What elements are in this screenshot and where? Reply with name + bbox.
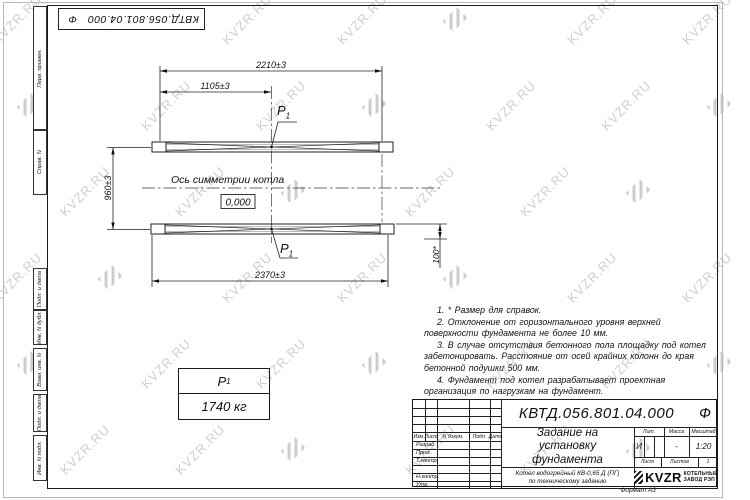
load-name-base: Р: [217, 374, 226, 389]
row-prov: Пров.: [414, 449, 439, 457]
title-line: фундамента: [532, 454, 603, 468]
title-line: установку: [539, 440, 596, 454]
drawing-sheet: KVZR.RUKVZR.RUKVZR.RUKVZR.RUKVZR.RUKVZR.…: [0, 0, 750, 500]
p1-base: P: [280, 241, 289, 256]
dim-1105: 1105±3: [200, 81, 229, 91]
mass-header: Масса: [664, 427, 689, 436]
note-1: 1. * Размер для справок.: [424, 305, 716, 317]
load-table-value: 1740 кг: [179, 394, 269, 418]
row-razrab: Разраб.: [414, 441, 439, 449]
axis-symmetry-label: Ось симметрии котла: [171, 174, 284, 186]
mass-value: -: [664, 436, 689, 457]
product-name: Котел водогрейный КВ-0,65 Д (ПГ) по техн…: [501, 467, 634, 488]
lit-value: И: [634, 436, 644, 457]
kvzr-logo-mark-icon: [634, 471, 643, 484]
col-list: Лист: [425, 432, 437, 441]
sheets-total: 1: [698, 457, 718, 467]
col-data: Дата: [490, 432, 501, 441]
note-4: 4. Фундамент под котел разрабатывает про…: [424, 375, 716, 398]
logo-sub-line: ЗАВОД РЭП: [684, 477, 718, 483]
doc-number-cell: КВТД.056.801.04.000 Ф: [501, 400, 718, 427]
drawing-title: Задание на установку фундамента: [501, 427, 634, 467]
dim-100: 100*: [431, 246, 441, 264]
row-nkontr: Н.контр.: [414, 473, 439, 481]
load-table: Р1 1740 кг: [178, 368, 270, 420]
format-label: Формат А3: [598, 487, 678, 494]
center-lines: [142, 86, 441, 243]
product-line: по техническому заданию: [529, 478, 607, 486]
scale-value: 1:20: [689, 436, 718, 457]
dim-2370: 2370±3: [254, 270, 285, 280]
title-line: Задание на: [537, 427, 598, 441]
kvzr-logo-subtitle: КОТЕЛЬНЫЙ ЗАВОД РЭП: [684, 471, 718, 483]
kvzr-logo: KVZR КОТЕЛЬНЫЙ ЗАВОД РЭП: [634, 467, 718, 487]
p1-sub: 1: [286, 112, 290, 121]
doc-number-suffix: Ф: [692, 405, 718, 422]
row-tkontr: Т.контр.: [414, 457, 439, 465]
level-mark: 0,000: [225, 198, 250, 209]
title-block: Изм. Лист N докум. Подп. Дата Разраб. Пр…: [412, 399, 717, 487]
doc-number: КВТД.056.801.04.000: [501, 405, 692, 422]
dim-960: 960±3: [103, 176, 113, 201]
p1-sub: 1: [289, 250, 293, 259]
scale-header: Масштаб: [689, 427, 718, 436]
p1-label-upper: P1: [277, 103, 290, 121]
note-2: 2. Отклонение от горизонтального уровня …: [424, 317, 716, 340]
load-table-name: Р1: [179, 369, 269, 394]
kvzr-logo-text: KVZR: [645, 470, 682, 485]
dim-2210: 2210±3: [255, 60, 286, 70]
lit-header: Лит.: [634, 427, 664, 436]
sheet-label: Лист: [634, 457, 661, 467]
col-ndoc: N докум.: [437, 432, 469, 441]
product-line: Котел водогрейный КВ-0,65 Д (ПГ): [515, 470, 619, 478]
load-name-sub: 1: [226, 377, 230, 386]
notes: 1. * Размер для справок. 2. Отклонение о…: [424, 305, 716, 398]
col-podp: Подп.: [469, 432, 490, 441]
row-utv: Утв.: [414, 481, 439, 488]
p1-base: P: [277, 103, 286, 118]
sheets-label: Листов: [661, 457, 698, 467]
p1-label-lower: P1: [280, 241, 293, 259]
note-3: 3. В случае отсутствия бетонного пола пл…: [424, 340, 716, 375]
